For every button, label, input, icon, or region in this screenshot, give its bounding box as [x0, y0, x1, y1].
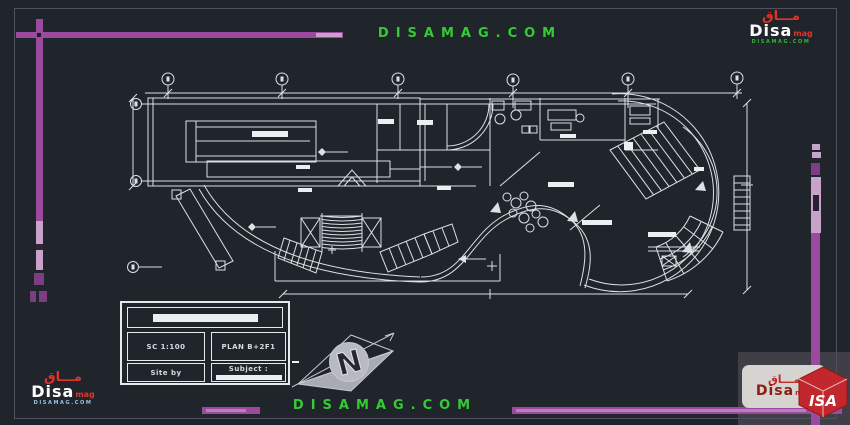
- site-label: Site by: [150, 369, 181, 377]
- garden-plants: [503, 192, 548, 232]
- scale-label: SC 1:100: [147, 343, 186, 351]
- logo-site-text: DISAMAG.COM: [30, 401, 96, 406]
- circular-wing: [490, 94, 753, 294]
- title-block-subject: Subject :: [211, 363, 286, 382]
- bottom-dimension: [279, 289, 692, 299]
- isa-cube-icon: ISA: [797, 366, 849, 418]
- title-block: SC 1:100 PLAN B+2F1 Site by Subject :: [120, 301, 290, 385]
- svg-text:ISA: ISA: [809, 392, 837, 410]
- front-stairs: [275, 213, 500, 281]
- left-wing: [148, 98, 420, 186]
- grid-bubbles-left: [128, 94, 163, 273]
- logo-top-right: مـــاق Disamag DISAMAG.COM: [748, 11, 814, 45]
- logo-bottom-left: مـــاق Disamag DISAMAG.COM: [30, 372, 96, 406]
- title-block-scale: SC 1:100: [127, 332, 205, 361]
- north-arrow-icon: N: [292, 333, 394, 391]
- logo-site-text: DISAMAG.COM: [748, 40, 814, 45]
- redacted-title-bar: [153, 314, 258, 322]
- middle-rooms: [377, 98, 658, 186]
- watermark-bottom: DISAMAG.COM: [255, 398, 515, 413]
- cad-viewport: N SC 1:100 PLAN B+2F1 Site by Subject : …: [0, 0, 850, 425]
- watermark-top: DISAMAG.COM: [340, 26, 600, 41]
- grid-bubbles-top: [145, 72, 743, 99]
- title-block-site: Site by: [127, 363, 205, 382]
- redacted-subject-bar: [216, 375, 282, 380]
- logo-name-text: Disamag: [30, 384, 96, 400]
- subject-label: Subject :: [229, 365, 268, 373]
- logo-name-text: Disamag: [748, 23, 814, 39]
- title-block-plan: PLAN B+2F1: [211, 332, 286, 361]
- title-block-header: [127, 307, 283, 328]
- plan-label: PLAN B+2F1: [221, 343, 275, 351]
